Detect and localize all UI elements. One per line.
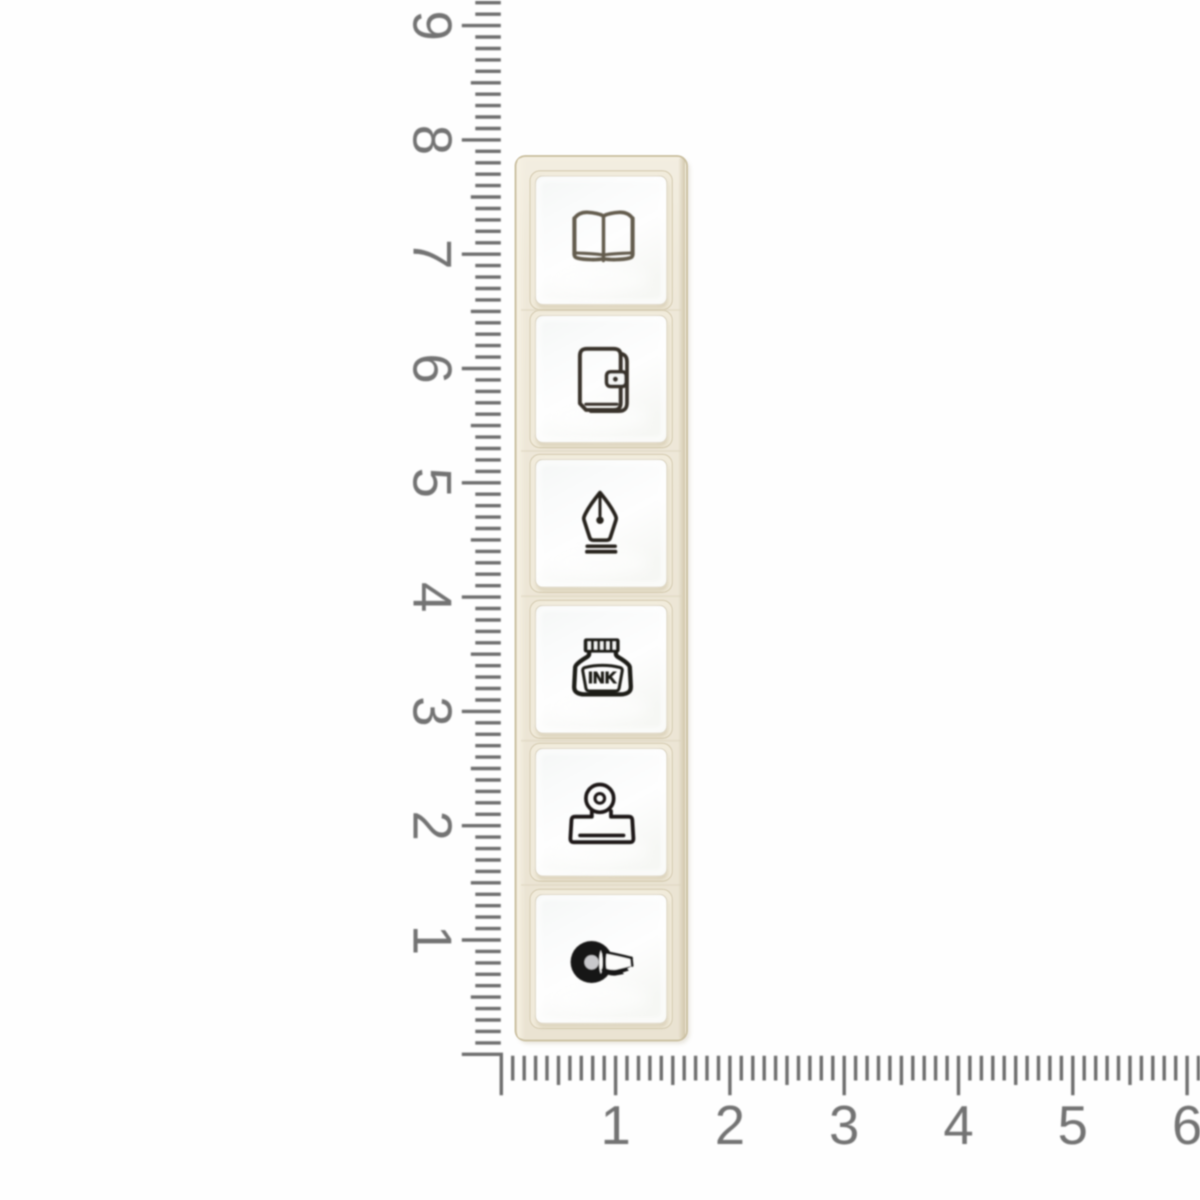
- svg-text:6: 6: [402, 353, 463, 383]
- svg-text:3: 3: [829, 1095, 859, 1156]
- svg-text:3: 3: [402, 696, 463, 726]
- svg-text:1: 1: [600, 1095, 630, 1156]
- svg-text:INK: INK: [588, 670, 617, 687]
- svg-text:2: 2: [715, 1095, 745, 1156]
- svg-text:4: 4: [943, 1095, 973, 1156]
- svg-text:6: 6: [1172, 1095, 1200, 1156]
- svg-text:9: 9: [402, 10, 463, 40]
- svg-text:8: 8: [402, 125, 463, 155]
- svg-text:7: 7: [402, 239, 463, 269]
- svg-text:4: 4: [402, 582, 463, 612]
- svg-text:5: 5: [402, 468, 463, 498]
- svg-text:5: 5: [1058, 1095, 1088, 1156]
- svg-text:2: 2: [402, 811, 463, 841]
- svg-text:1: 1: [402, 925, 463, 955]
